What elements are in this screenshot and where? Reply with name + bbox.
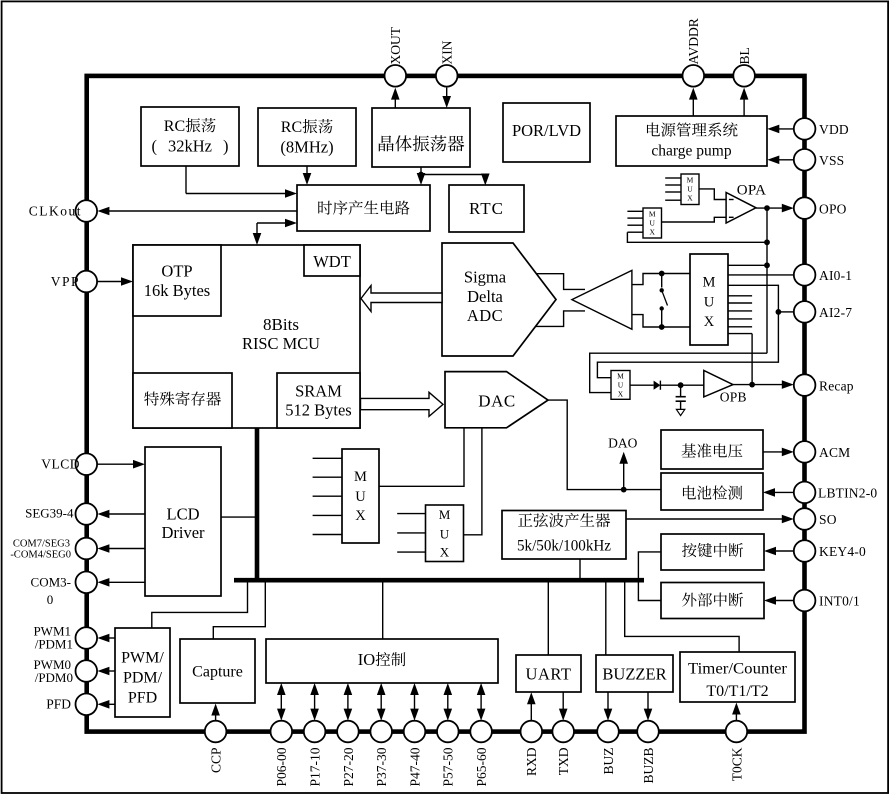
svg-text:P47-40: P47-40: [407, 747, 422, 786]
svg-text:OPA: OPA: [737, 183, 767, 199]
svg-text:): ): [223, 137, 229, 156]
svg-text:PFD: PFD: [128, 690, 157, 707]
svg-text:SEG39-4: SEG39-4: [25, 506, 74, 521]
svg-text:CLKout: CLKout: [29, 203, 82, 218]
svg-text:SRAM: SRAM: [295, 382, 342, 401]
svg-text:LCD: LCD: [167, 505, 200, 524]
svg-text:U: U: [687, 185, 693, 194]
svg-text:M: M: [703, 275, 716, 291]
svg-text:Driver: Driver: [161, 523, 205, 542]
svg-text:charge pump: charge pump: [651, 143, 731, 160]
svg-text:SO: SO: [819, 512, 837, 527]
svg-text:T0CK: T0CK: [729, 747, 744, 781]
svg-text:5k/50k/100kHz: 5k/50k/100kHz: [517, 538, 611, 555]
svg-text:X: X: [649, 228, 655, 237]
svg-text:PDM/: PDM/: [123, 670, 163, 687]
svg-text:LBTIN2-0: LBTIN2-0: [818, 486, 877, 501]
svg-text:BUZ: BUZ: [601, 748, 616, 775]
svg-text:M: M: [439, 507, 451, 522]
svg-text:P57-50: P57-50: [441, 747, 456, 786]
svg-text:PFD: PFD: [46, 696, 71, 711]
svg-text:U: U: [704, 295, 715, 311]
svg-text:M: M: [354, 469, 367, 485]
svg-text:16k Bytes: 16k Bytes: [144, 281, 210, 300]
svg-text:X: X: [704, 314, 715, 330]
svg-text:AVDDR: AVDDR: [686, 18, 701, 64]
svg-text:Recap: Recap: [819, 378, 854, 393]
svg-text:M: M: [649, 210, 656, 219]
svg-text:0: 0: [47, 592, 54, 607]
svg-text:IO: IO: [358, 650, 375, 669]
svg-text:COM3-: COM3-: [31, 575, 71, 590]
svg-text:RXD: RXD: [524, 747, 539, 776]
svg-text:VLCD: VLCD: [41, 457, 80, 472]
svg-text:RISC MCU: RISC MCU: [242, 334, 320, 353]
svg-text:RC: RC: [164, 118, 185, 135]
svg-text:X: X: [440, 545, 450, 560]
svg-text:UART: UART: [526, 665, 572, 684]
svg-text:OTP: OTP: [161, 262, 192, 281]
svg-text:P37-30: P37-30: [374, 747, 389, 786]
svg-text:INT0/1: INT0/1: [819, 594, 860, 609]
svg-text:X: X: [618, 390, 624, 399]
svg-text:CCP: CCP: [209, 748, 224, 774]
svg-text:P65-60: P65-60: [474, 747, 489, 786]
svg-text:32kHz: 32kHz: [168, 137, 212, 156]
svg-text:ADC: ADC: [467, 306, 503, 325]
svg-text:POR/LVD: POR/LVD: [512, 121, 581, 140]
svg-text:8Bits: 8Bits: [263, 315, 299, 334]
svg-text:WDT: WDT: [313, 252, 351, 271]
svg-text:COM7/SEG3: COM7/SEG3: [13, 539, 70, 550]
svg-text:(: (: [152, 137, 158, 156]
svg-text:OPO: OPO: [819, 201, 847, 216]
svg-text:M: M: [617, 372, 624, 381]
svg-text:DAC: DAC: [478, 391, 515, 410]
svg-text:P17-10: P17-10: [308, 747, 323, 786]
svg-text:ACM: ACM: [819, 445, 850, 460]
svg-text:X: X: [355, 508, 366, 524]
svg-text:VSS: VSS: [819, 153, 844, 168]
svg-text:P27-20: P27-20: [341, 747, 356, 786]
svg-text:U: U: [440, 527, 450, 542]
svg-text:Timer/Counter: Timer/Counter: [688, 661, 788, 678]
svg-text:AI0-1: AI0-1: [819, 268, 852, 283]
svg-text:/PDM1: /PDM1: [35, 637, 73, 652]
svg-text:XIN: XIN: [440, 40, 455, 64]
svg-text:X: X: [687, 194, 693, 203]
svg-text:(8MHz): (8MHz): [280, 138, 333, 157]
svg-text:VDD: VDD: [819, 122, 849, 137]
svg-text:512 Bytes: 512 Bytes: [285, 401, 351, 420]
svg-text:BL: BL: [737, 47, 752, 64]
svg-text:OPB: OPB: [720, 390, 747, 405]
svg-text:AI2-7: AI2-7: [819, 305, 852, 320]
svg-text:T0/T1/T2: T0/T1/T2: [706, 683, 768, 700]
svg-text:XOUT: XOUT: [388, 26, 403, 64]
svg-text:M: M: [687, 176, 694, 185]
svg-text:PWM/: PWM/: [121, 650, 164, 667]
svg-text:TXD: TXD: [556, 747, 571, 775]
svg-text:P06-00: P06-00: [274, 747, 289, 786]
svg-text:/PDM0: /PDM0: [35, 670, 73, 685]
svg-text:DAO: DAO: [608, 436, 637, 451]
svg-text:KEY4-0: KEY4-0: [819, 544, 866, 559]
svg-text:RTC: RTC: [469, 199, 504, 218]
svg-text:U: U: [649, 219, 655, 228]
svg-text:Sigma: Sigma: [464, 268, 507, 287]
svg-text:U: U: [618, 381, 624, 390]
svg-text:BUZZER: BUZZER: [602, 665, 666, 684]
svg-text:VPP: VPP: [51, 274, 80, 289]
svg-text:U: U: [355, 489, 366, 505]
svg-text:Delta: Delta: [467, 287, 503, 306]
svg-text:Capture: Capture: [192, 664, 243, 681]
svg-text:-COM4/SEG0: -COM4/SEG0: [10, 550, 71, 561]
svg-text:RC: RC: [281, 119, 302, 136]
svg-text:BUZB: BUZB: [641, 748, 656, 784]
